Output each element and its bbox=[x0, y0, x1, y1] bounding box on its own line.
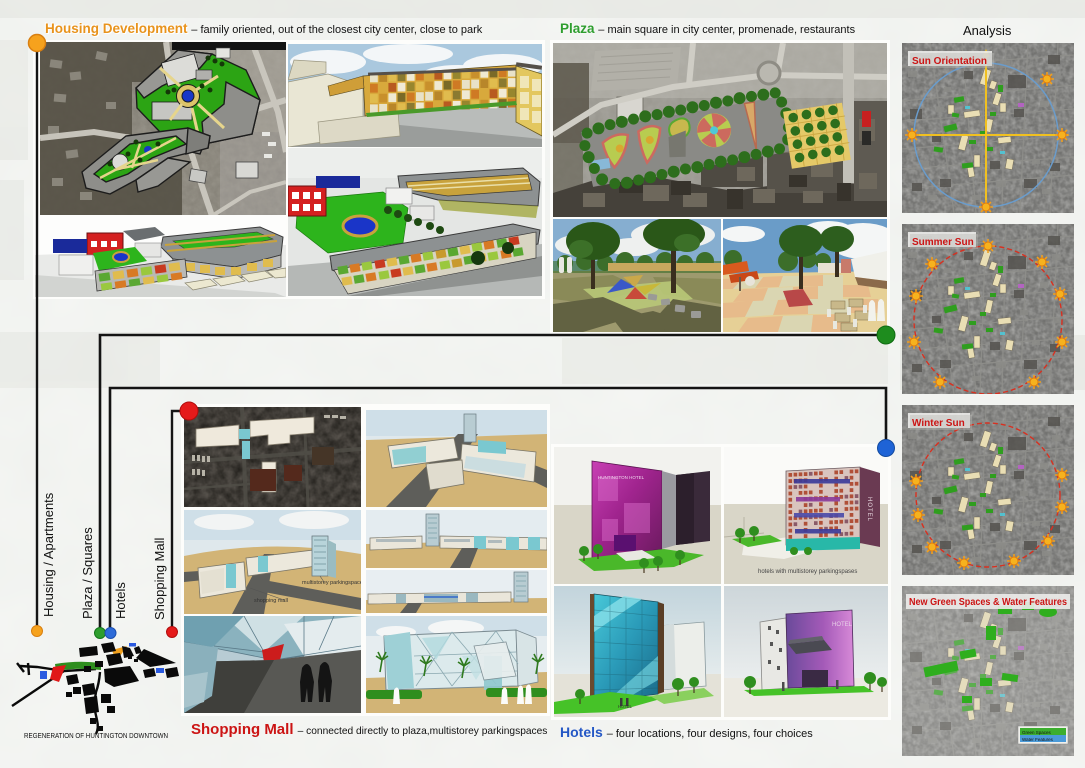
svg-text:REGENERATION OF HUNTINGTON DOW: REGENERATION OF HUNTINGTON DOWNTOWN bbox=[24, 733, 168, 740]
